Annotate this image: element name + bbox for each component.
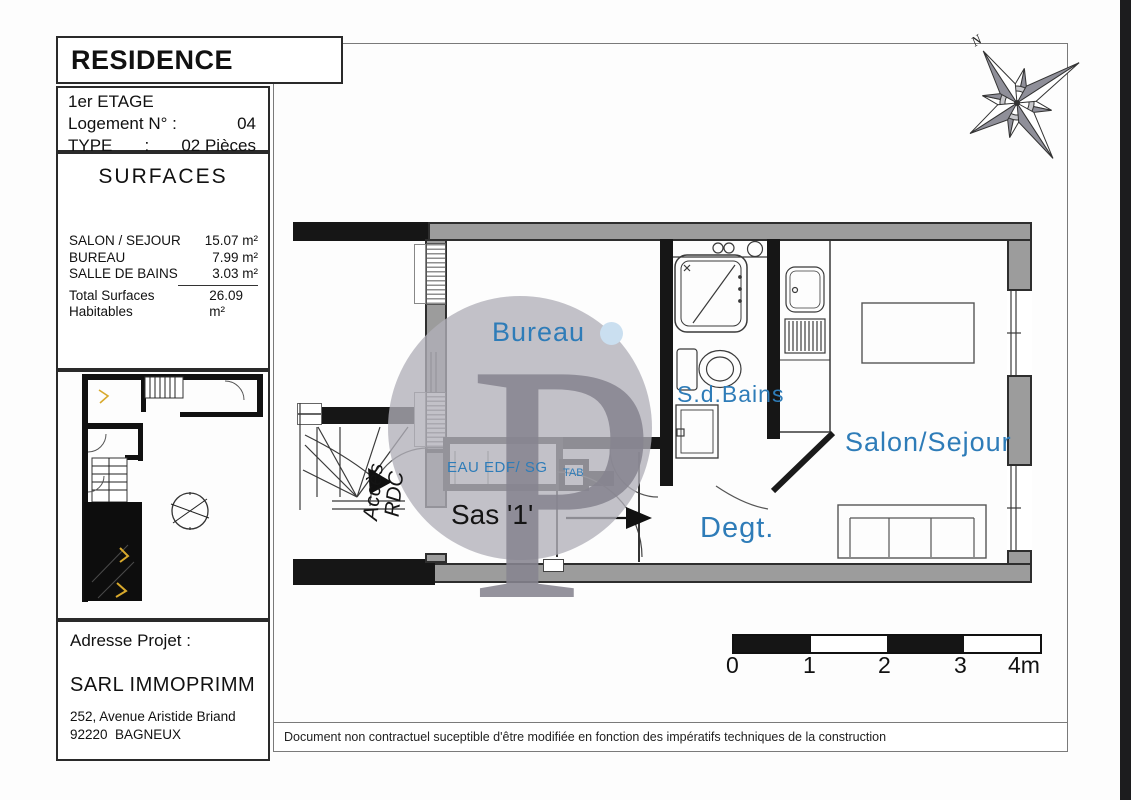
scale-tick: 0 [726,652,739,679]
total-value: 26.09 m² [209,288,258,321]
disclaimer-box: Document non contractuel suceptible d'êt… [273,722,1068,752]
table-row: SALLE DE BAINS 3.03 m² [58,266,268,283]
unit-number-value: 04 [237,113,256,134]
surface-label: BUREAU [69,250,125,267]
surfaces-title: SURFACES [58,165,268,189]
wall-segment [425,553,447,563]
address-company: SARL IMMOPRIMM [58,651,268,697]
table-row: BUREAU 7.99 m² [58,250,268,267]
wall-segment [428,222,1032,241]
total-row: Total Surfaces Habitables 26.09 m² [58,288,268,321]
scale-tick-end: 4m [1008,652,1040,679]
surface-value: 15.07 m² [205,233,258,250]
window [1007,291,1032,375]
unit-number-label: Logement N° : [68,113,177,134]
scale-bar [732,634,1042,654]
address-box: Adresse Projet : SARL IMMOPRIMM 252, Ave… [56,620,270,761]
address-heading: Adresse Projet : [58,622,268,651]
unit-number-row: Logement N° : 04 [58,112,268,134]
watermark-dot [600,322,623,345]
address-city: 92220 BAGNEUX [58,724,268,742]
surface-value: 3.03 m² [212,266,258,283]
floor-plan-sheet: RESIDENCE BAGNEUX 1er ETAGE Logement N° … [0,0,1131,800]
utilities-label: EAU EDF/ SG [447,459,548,476]
surface-label: SALLE DE BAINS [69,266,178,283]
floor-row: 1er ETAGE [58,90,268,112]
scale-segment [964,636,1041,652]
wall-segment [293,222,434,241]
scale-segment [887,636,964,652]
tab-label: TAB [563,467,584,479]
wall-segment [767,239,780,439]
wall-segment [293,559,435,585]
surfaces-table: SALON / SEJOUR 15.07 m² BUREAU 7.99 m² S… [58,233,268,321]
access-line2: RDC [381,470,409,518]
total-divider [178,285,258,286]
landing-detail [297,414,322,425]
scan-edge-artifact [1120,0,1131,800]
scale-tick: 3 [954,652,967,679]
scale-tick: 1 [803,652,816,679]
room-label-bathroom: S.d.Bains [677,381,784,408]
scale-tick: 2 [878,652,891,679]
room-label-hallway: Degt. [700,512,774,545]
watermark-letter: P [468,313,657,653]
room-label-entry: Sas '1' [451,499,533,531]
floor-label: 1er ETAGE [68,91,154,112]
unit-info-box: 1er ETAGE Logement N° : 04 TYPE : 02 Piè… [56,86,270,152]
key-plan-box [56,370,270,620]
window-sill [414,244,426,304]
disclaimer-text: Document non contractuel suceptible d'êt… [284,730,886,744]
total-label: Total Surfaces Habitables [69,288,209,321]
wall-segment [1007,239,1032,291]
scale-segment [734,636,811,652]
window [426,243,446,305]
window [1007,466,1032,550]
room-label-bureau: Bureau [492,317,585,348]
surface-label: SALON / SEJOUR [69,233,181,250]
scale-segment [811,636,888,652]
surfaces-box: SURFACES SALON / SEJOUR 15.07 m² BUREAU … [56,152,270,370]
room-label-living: Salon/Sejour [845,427,1012,458]
landing-detail [297,403,322,414]
table-row: SALON / SEJOUR 15.07 m² [58,233,268,250]
surface-value: 7.99 m² [212,250,258,267]
project-title-box: RESIDENCE BAGNEUX [56,36,343,84]
address-street: 252, Avenue Aristide Briand [58,697,268,724]
